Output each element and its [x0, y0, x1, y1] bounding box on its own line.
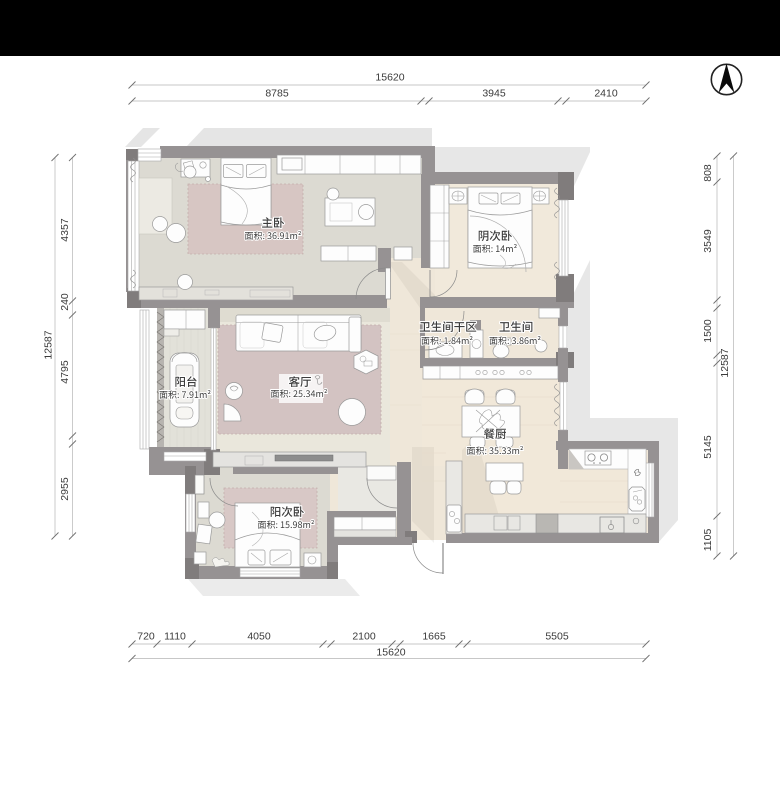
svg-text:12587: 12587: [719, 348, 731, 377]
svg-text:240: 240: [59, 293, 71, 311]
svg-text:3549: 3549: [702, 229, 714, 253]
svg-text:808: 808: [702, 164, 714, 182]
svg-text:15620: 15620: [376, 647, 405, 659]
svg-text:1665: 1665: [422, 631, 446, 643]
svg-text:5505: 5505: [545, 631, 569, 643]
svg-text:4050: 4050: [247, 631, 271, 643]
svg-text:1500: 1500: [702, 319, 714, 343]
svg-text:12587: 12587: [43, 330, 55, 359]
svg-text:2955: 2955: [59, 477, 71, 501]
svg-text:720: 720: [137, 631, 155, 643]
svg-text:1105: 1105: [702, 529, 714, 552]
svg-text:2100: 2100: [352, 631, 376, 643]
svg-text:4357: 4357: [59, 218, 71, 242]
svg-text:3945: 3945: [482, 88, 506, 100]
svg-text:4795: 4795: [59, 360, 71, 384]
svg-text:8785: 8785: [265, 88, 289, 100]
svg-text:1110: 1110: [164, 631, 186, 643]
svg-text:15620: 15620: [375, 72, 404, 84]
svg-text:2410: 2410: [594, 88, 618, 100]
svg-text:5145: 5145: [702, 435, 714, 459]
